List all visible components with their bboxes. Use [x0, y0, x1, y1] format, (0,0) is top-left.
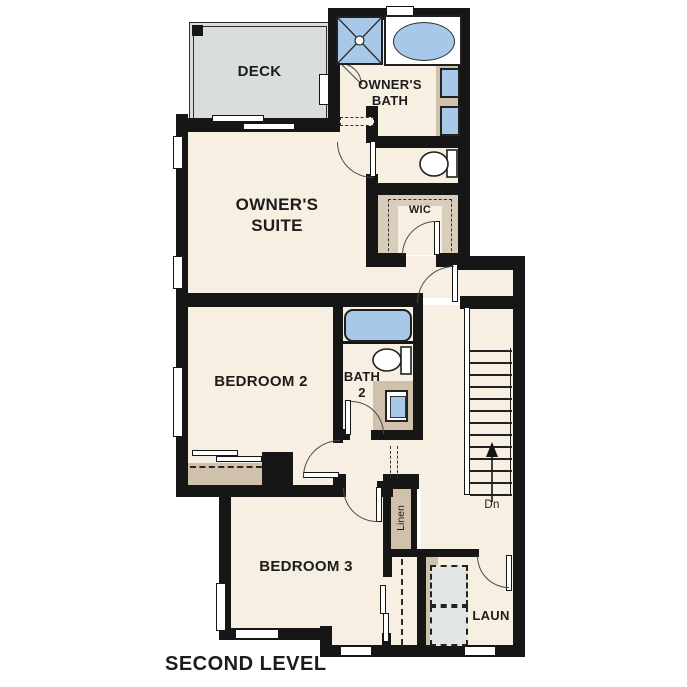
stair-tread: [470, 410, 512, 412]
linen-label-wrap: Linen: [391, 487, 411, 549]
wall: [417, 549, 426, 647]
deck-sliding-door: [243, 123, 295, 130]
bath2-label: BATH 2: [337, 369, 387, 401]
stair-direction-arrow: [482, 442, 502, 504]
wall: [413, 293, 423, 440]
bedroom3-label: BEDROOM 3: [225, 558, 387, 576]
stair-tread: [470, 422, 512, 424]
washer: [430, 565, 468, 606]
bath-entry-dashed-opening: [340, 117, 374, 126]
bedroom2-closet-rod: [190, 466, 262, 468]
bath2-sink: [385, 390, 408, 422]
window: [173, 136, 183, 169]
stair-inner-line: [510, 348, 511, 496]
hall-cased-opening: [390, 446, 391, 478]
wall: [417, 549, 479, 557]
stair-tread: [470, 362, 512, 364]
vanity-sink: [440, 68, 460, 98]
deck-label: DECK: [189, 63, 330, 81]
stair-tread: [470, 350, 512, 352]
wall: [411, 487, 417, 551]
page-title: SECOND LEVEL: [165, 652, 385, 676]
owners-bath-label: OWNER'S BATH: [345, 77, 435, 109]
stair-tread: [470, 386, 512, 388]
room-bedroom3-south: [332, 620, 389, 647]
bath2-tub: [344, 309, 412, 342]
wall: [366, 183, 470, 195]
stair-tread: [470, 374, 512, 376]
deck-sliding-door: [212, 115, 264, 122]
bedroom3-closet-floor: [389, 555, 417, 647]
window: [173, 256, 183, 289]
deck-post: [192, 25, 203, 36]
laundry-label: LAUN: [460, 608, 522, 624]
wic-label: WIC: [398, 204, 442, 217]
owners-tub-surround: [384, 15, 462, 66]
window: [464, 646, 496, 656]
bedroom3-closet-bypass-door: [380, 585, 386, 614]
bedroom2-closet-bypass-door: [216, 456, 262, 462]
bedroom2-label: BEDROOM 2: [186, 373, 336, 391]
window: [173, 367, 183, 437]
owners-tub: [393, 22, 455, 61]
owners-suite-label: OWNER'S SUITE: [186, 195, 368, 236]
shower: [336, 16, 383, 65]
wall: [366, 253, 406, 267]
stairs-dn-label: Dn: [478, 498, 506, 512]
wall: [513, 256, 525, 657]
hall-cased-opening: [397, 446, 398, 478]
window: [216, 583, 226, 631]
wall: [333, 293, 343, 443]
bedroom3-closet-rod: [401, 559, 403, 645]
window: [235, 629, 279, 639]
wall: [176, 485, 346, 497]
linen-label: Linen: [395, 505, 407, 531]
stair-tread: [470, 398, 512, 400]
floor-plan: DECK OWNER'S BATH OWNER'S SUITE WIC BEDR…: [0, 0, 687, 687]
stair-tread: [470, 434, 512, 436]
vanity-sink: [440, 106, 460, 136]
wall: [383, 474, 391, 557]
stair-railing: [464, 307, 470, 495]
wall: [176, 293, 423, 307]
bedroom3-closet-bypass-door: [383, 613, 389, 642]
toilet: [414, 145, 460, 183]
